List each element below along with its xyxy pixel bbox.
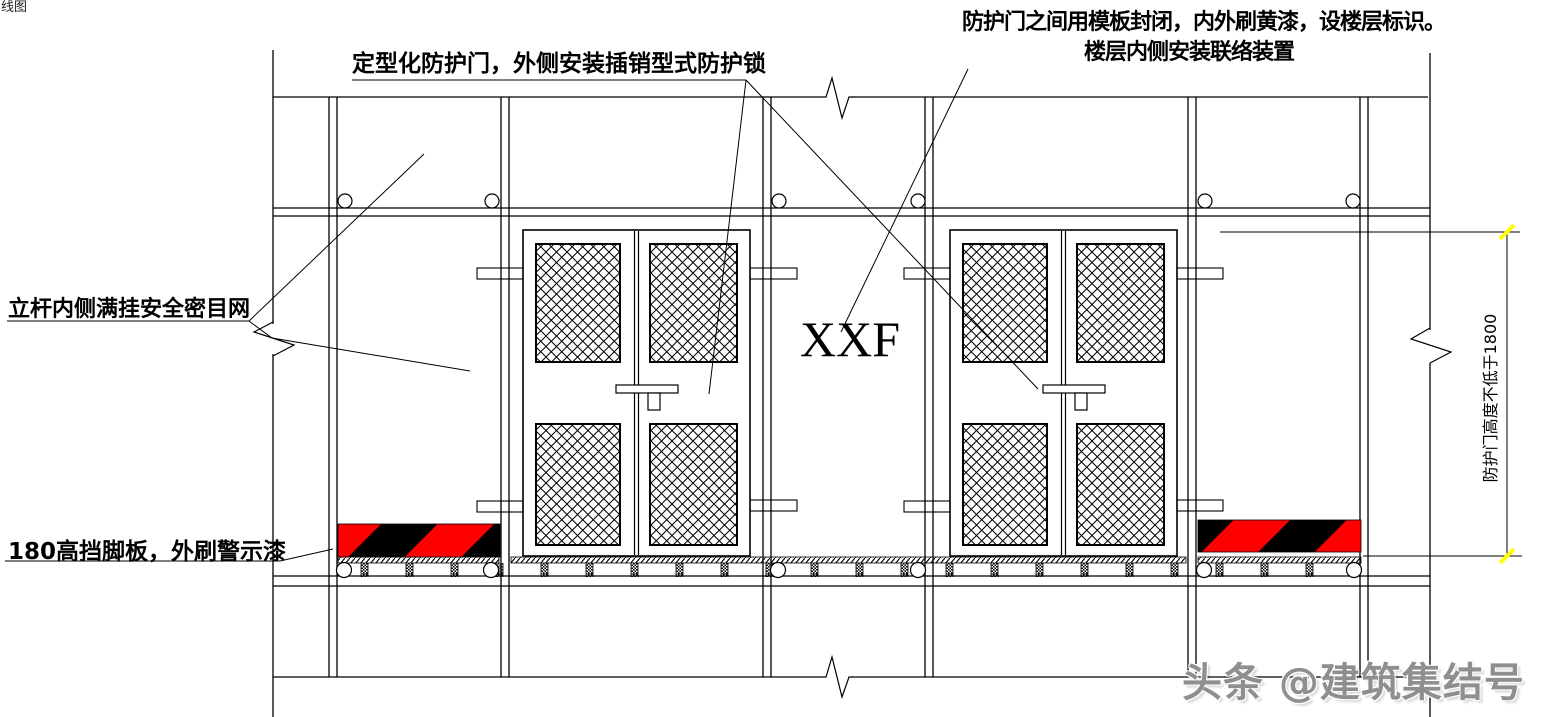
dimension-text: 防护门高度不低于1800	[1477, 313, 1497, 483]
label-door-gap-note: 防护门之间用模板封闭，内外刷黄漆，设楼层标识。 楼层内侧安装联络装置	[962, 8, 1416, 68]
corner-text-fragment: 线图	[1, 0, 27, 15]
protective-door-left	[523, 230, 750, 556]
toe-board-left	[338, 524, 500, 557]
drawing-linework	[0, 0, 1542, 717]
door-mark-text: XXF	[795, 310, 905, 368]
label-safety-net: 立杆内侧满挂安全密目网	[8, 291, 250, 323]
label-door-type: 定型化防护门，外侧安装插销型式防护锁	[352, 44, 746, 78]
construction-detail-drawing: 线图 定型化防护门，外侧安装插销型式防护锁 防护门之间用模板封闭，内外刷黄漆，设…	[0, 0, 1542, 717]
scaffold-posts	[273, 50, 1430, 717]
label-toe-board: 180高挡脚板，外刷警示漆	[8, 532, 286, 566]
toe-board-right	[1198, 520, 1361, 552]
protective-door-right	[950, 230, 1177, 556]
walk-deck	[337, 557, 1362, 578]
label-door-gap-note-line1: 防护门之间用模板封闭，内外刷黄漆，设楼层标识。	[962, 8, 1416, 38]
rail-couplers	[338, 194, 1360, 208]
label-door-gap-note-line2: 楼层内侧安装联络装置	[962, 38, 1416, 68]
watermark-text: 头条 @建筑集结号	[1182, 650, 1525, 708]
scaffold-rails	[273, 97, 1430, 677]
break-symbols	[254, 78, 1451, 697]
